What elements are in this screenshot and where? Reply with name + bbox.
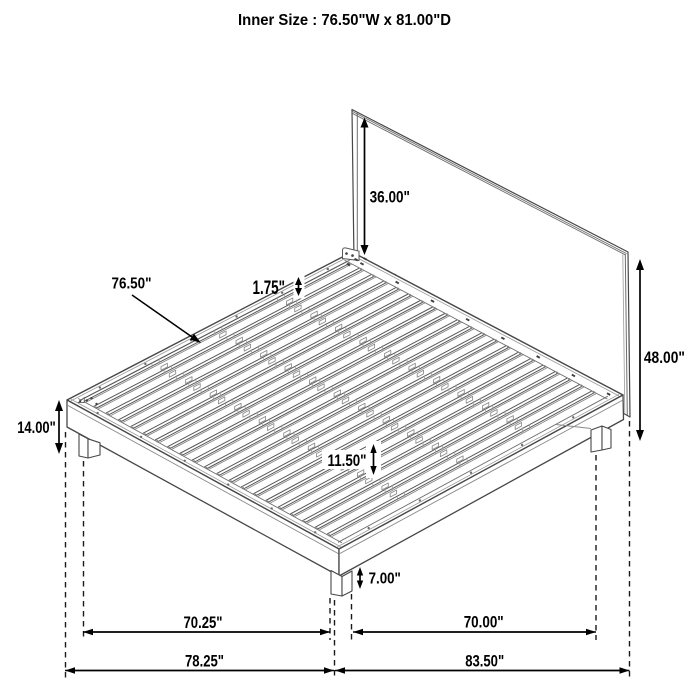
svg-text:83.50": 83.50" [465,652,504,670]
svg-text:76.50": 76.50" [112,276,152,293]
svg-text:36.00": 36.00" [370,189,410,207]
svg-text:7.00": 7.00" [369,570,401,587]
svg-text:1.75": 1.75" [253,277,286,299]
svg-text:70.00": 70.00" [464,614,504,632]
svg-text:48.00": 48.00" [644,349,685,367]
svg-text:11.50": 11.50" [328,452,367,470]
svg-text:Inner Size : 76.50"W x 81.00"D: Inner Size : 76.50"W x 81.00"D [238,12,451,29]
svg-text:78.25": 78.25" [185,652,224,670]
svg-text:14.00": 14.00" [17,418,56,437]
svg-text:70.25": 70.25" [184,614,223,632]
